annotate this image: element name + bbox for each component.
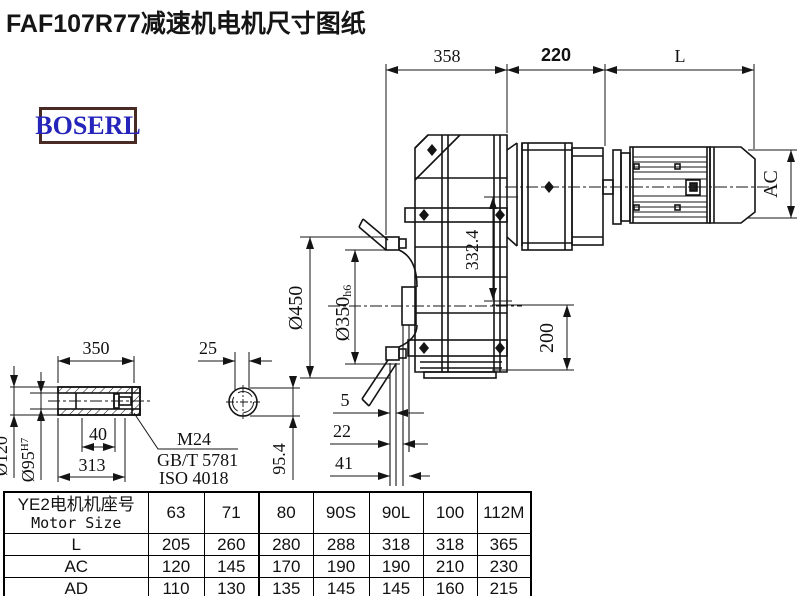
table-row-AC: AC 120 145 170 190 190 210 230 bbox=[4, 556, 531, 578]
table-cell: 135 bbox=[259, 578, 313, 596]
row-label: L bbox=[4, 534, 148, 556]
header-cn: YE2电机机座号 bbox=[5, 495, 148, 515]
bolt-spec-m24: M24 bbox=[177, 429, 211, 449]
table-cell: 288 bbox=[313, 534, 369, 556]
table-cell: 280 bbox=[259, 534, 313, 556]
shaft-end-view bbox=[226, 385, 260, 419]
row-label: AC bbox=[4, 556, 148, 578]
table-cell: 145 bbox=[313, 578, 369, 596]
shaft-dimensions bbox=[10, 352, 300, 482]
table-header-cell: YE2电机机座号 Motor Size bbox=[4, 492, 148, 534]
table-cell: 145 bbox=[369, 578, 423, 596]
size-col-header: 63 bbox=[148, 492, 204, 534]
row-label: AD bbox=[4, 578, 148, 596]
dim-332-label: 332.4 bbox=[462, 230, 482, 271]
table-cell: 260 bbox=[204, 534, 259, 556]
table-cell: 215 bbox=[477, 578, 531, 596]
dim-5-label: 5 bbox=[341, 390, 350, 410]
center-lines bbox=[328, 187, 772, 306]
size-col-header: 90L bbox=[369, 492, 423, 534]
table-cell: 130 bbox=[204, 578, 259, 596]
gearbox-housing bbox=[405, 135, 507, 378]
dim-954-label: 95.4 bbox=[269, 443, 289, 475]
drawing-page: FAF107R77减速机电机尺寸图纸 BOSERL bbox=[0, 0, 800, 596]
size-col-header: 100 bbox=[423, 492, 477, 534]
input-adapter bbox=[507, 143, 613, 250]
table-cell: 110 bbox=[148, 578, 204, 596]
dim-200-label: 200 bbox=[536, 323, 558, 353]
dim-200 bbox=[492, 305, 574, 370]
dim-22-label: 22 bbox=[333, 421, 351, 441]
table-cell: 318 bbox=[423, 534, 477, 556]
size-col-header: 71 bbox=[204, 492, 259, 534]
table-cell: 365 bbox=[477, 534, 531, 556]
dim-40-label: 40 bbox=[89, 424, 107, 444]
dim-d120-label: Ø120 bbox=[0, 436, 11, 476]
bolt-spec-gbt: GB/T 5781 bbox=[157, 450, 238, 470]
dim-d350-label: Ø350h6 bbox=[332, 285, 354, 341]
table-cell: 120 bbox=[148, 556, 204, 578]
table-cell: 145 bbox=[204, 556, 259, 578]
dim-AC-label: AC bbox=[760, 170, 782, 198]
table-header-row: YE2电机机座号 Motor Size 63 71 80 90S 90L 100… bbox=[4, 492, 531, 534]
table-cell: 230 bbox=[477, 556, 531, 578]
dim-358-label: 358 bbox=[434, 46, 461, 66]
table-row-L: L 205 260 280 288 318 318 365 bbox=[4, 534, 531, 556]
fan-cowl bbox=[710, 147, 755, 223]
dim-d95-label: Ø95H7 bbox=[18, 437, 38, 482]
table-cell: 318 bbox=[369, 534, 423, 556]
dim-d450-label: Ø450 bbox=[285, 286, 307, 330]
bolt-spec-iso: ISO 4018 bbox=[159, 468, 229, 488]
table-cell: 205 bbox=[148, 534, 204, 556]
size-col-header: 90S bbox=[313, 492, 369, 534]
table-row-AD: AD 110 130 135 145 145 160 215 bbox=[4, 578, 531, 596]
motor-size-table: YE2电机机座号 Motor Size 63 71 80 90S 90L 100… bbox=[3, 491, 532, 596]
table-cell: 190 bbox=[369, 556, 423, 578]
dim-313-label: 313 bbox=[79, 455, 106, 475]
dim-25-label: 25 bbox=[199, 338, 217, 358]
table-cell: 160 bbox=[423, 578, 477, 596]
dim-41-label: 41 bbox=[335, 453, 353, 473]
dim-L-label: L bbox=[675, 46, 686, 66]
bolt-marks bbox=[419, 144, 554, 354]
header-en: Motor Size bbox=[5, 515, 148, 532]
table-cell: 190 bbox=[313, 556, 369, 578]
dim-350-label: 350 bbox=[83, 338, 110, 358]
table-cell: 210 bbox=[423, 556, 477, 578]
technical-drawing: 358 220 L AC 332.4 200 bbox=[0, 0, 800, 491]
size-col-header: 80 bbox=[259, 492, 313, 534]
dim-220-label: 220 bbox=[541, 45, 571, 65]
size-col-header: 112M bbox=[477, 492, 531, 534]
motor bbox=[613, 147, 755, 224]
table-cell: 170 bbox=[259, 556, 313, 578]
